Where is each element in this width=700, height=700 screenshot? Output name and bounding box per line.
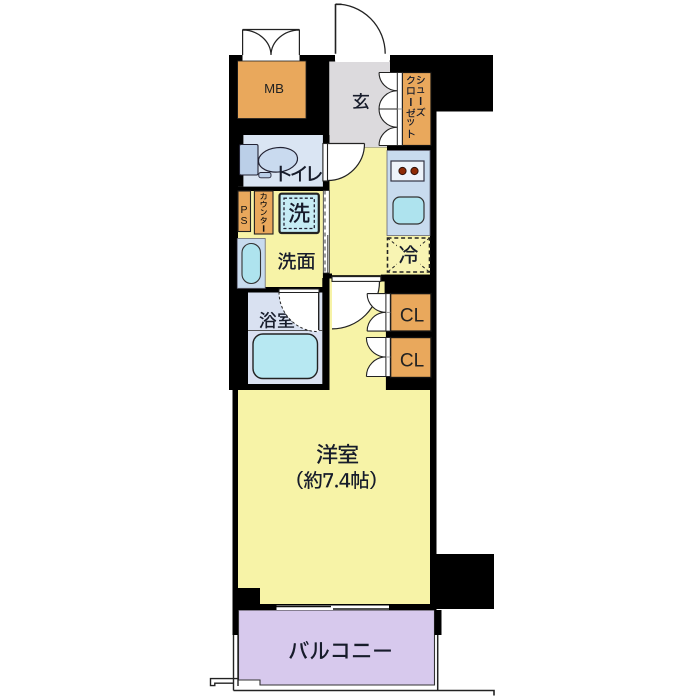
svg-text:S: S	[241, 215, 248, 227]
svg-text:CL: CL	[400, 350, 424, 371]
svg-text:MB: MB	[264, 81, 284, 96]
svg-text:CL: CL	[400, 305, 424, 326]
